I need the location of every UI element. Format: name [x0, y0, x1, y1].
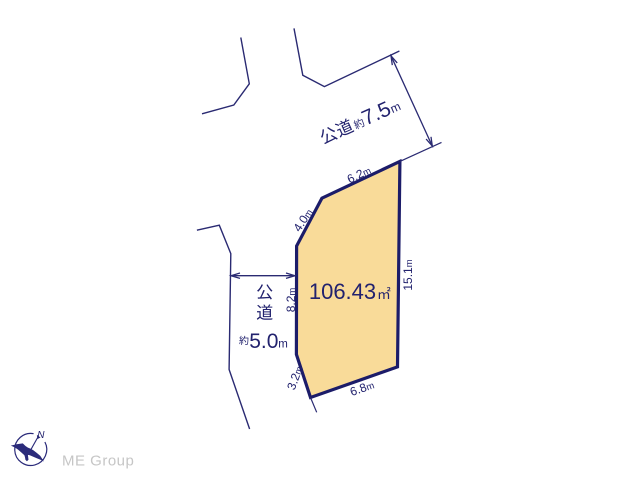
- svg-text:ME Group: ME Group: [62, 453, 134, 470]
- svg-text:5.0: 5.0: [249, 330, 278, 353]
- svg-text:8.2m: 8.2m: [284, 288, 298, 313]
- svg-text:15.1m: 15.1m: [401, 259, 415, 290]
- svg-text:m: m: [278, 338, 288, 350]
- svg-text:106.43: 106.43: [309, 279, 376, 304]
- svg-text:N: N: [37, 430, 45, 441]
